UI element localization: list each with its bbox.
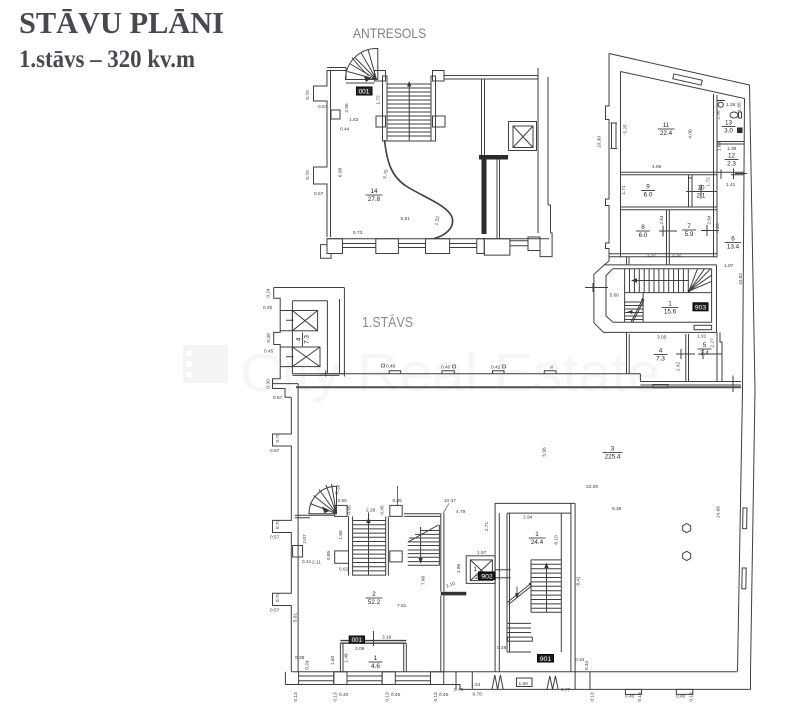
svg-text:5.9: 5.9 xyxy=(685,231,694,238)
svg-text:S: S xyxy=(549,366,555,369)
svg-text:0.85: 0.85 xyxy=(326,551,332,561)
svg-text:1.95: 1.95 xyxy=(737,102,743,112)
svg-text:1: 1 xyxy=(474,567,478,573)
svg-text:2.11: 2.11 xyxy=(312,560,321,566)
svg-text:2.54: 2.54 xyxy=(659,215,665,225)
svg-text:1.10: 1.10 xyxy=(445,581,456,590)
svg-text:5.73: 5.73 xyxy=(353,230,363,236)
svg-text:0.30: 0.30 xyxy=(266,379,272,389)
svg-text:1: 1 xyxy=(668,301,672,308)
svg-text:902: 902 xyxy=(481,574,493,581)
svg-text:10.30: 10.30 xyxy=(597,136,603,148)
svg-text:0.70: 0.70 xyxy=(275,433,281,443)
svg-text:7.66: 7.66 xyxy=(421,576,427,586)
svg-text:11: 11 xyxy=(663,122,670,129)
svg-text:4.86: 4.86 xyxy=(652,164,662,170)
svg-text:3.09: 3.09 xyxy=(355,646,365,652)
svg-text:225.4: 225.4 xyxy=(605,454,621,461)
svg-text:1.36: 1.36 xyxy=(726,102,736,108)
svg-text:0.40: 0.40 xyxy=(676,694,686,700)
svg-text:0.24: 0.24 xyxy=(266,288,272,298)
svg-text:3.0: 3.0 xyxy=(724,128,733,135)
svg-text:0.41: 0.41 xyxy=(302,559,312,565)
svg-text:0.57: 0.57 xyxy=(270,535,280,541)
svg-text:2.29: 2.29 xyxy=(366,508,376,514)
svg-text:6: 6 xyxy=(731,236,735,243)
svg-text:13.4: 13.4 xyxy=(727,244,740,251)
svg-text:0.77: 0.77 xyxy=(561,687,571,693)
svg-text:0.40: 0.40 xyxy=(263,305,273,311)
svg-text:ANTRESOLS: ANTRESOLS xyxy=(353,25,426,41)
svg-text:1.66: 1.66 xyxy=(338,530,344,540)
svg-text:5.60: 5.60 xyxy=(610,293,620,299)
svg-text:1.STĀVS: 1.STĀVS xyxy=(362,315,413,331)
svg-text:1.57: 1.57 xyxy=(477,550,487,556)
svg-text:2.3: 2.3 xyxy=(727,161,736,168)
svg-text:0.13: 0.13 xyxy=(637,692,643,702)
svg-text:4: 4 xyxy=(296,337,303,341)
svg-text:1.07: 1.07 xyxy=(724,263,734,269)
svg-text:2.32: 2.32 xyxy=(672,253,682,259)
svg-text:5.91: 5.91 xyxy=(401,216,411,222)
svg-text:1.38: 1.38 xyxy=(727,146,737,152)
svg-text:3.05: 3.05 xyxy=(657,335,667,341)
svg-text:1.63: 1.63 xyxy=(349,117,359,123)
svg-text:5.70: 5.70 xyxy=(382,169,390,180)
svg-text:STĀVU PLĀNI: STĀVU PLĀNI xyxy=(19,5,224,40)
svg-text:6.0: 6.0 xyxy=(644,192,653,199)
svg-text:2.94: 2.94 xyxy=(523,515,533,521)
svg-text:0.70: 0.70 xyxy=(305,90,311,100)
svg-text:0.40: 0.40 xyxy=(386,364,396,370)
svg-text:5: 5 xyxy=(703,342,707,349)
svg-text:0.34: 0.34 xyxy=(575,657,585,663)
svg-text:0.44: 0.44 xyxy=(340,127,350,133)
svg-text:4: 4 xyxy=(659,348,663,355)
svg-text:1.91: 1.91 xyxy=(697,334,707,340)
svg-text:0.57: 0.57 xyxy=(273,395,283,401)
svg-text:0.65: 0.65 xyxy=(347,505,353,515)
svg-text:3.19: 3.19 xyxy=(382,635,392,641)
svg-text:0.30: 0.30 xyxy=(266,333,272,343)
svg-text:7.3: 7.3 xyxy=(656,356,665,363)
svg-text:0.49: 0.49 xyxy=(497,645,507,651)
svg-text:4.79: 4.79 xyxy=(456,509,466,515)
svg-text:3: 3 xyxy=(611,446,615,453)
svg-text:1.96: 1.96 xyxy=(456,564,462,574)
svg-text:4.20: 4.20 xyxy=(715,223,721,233)
svg-text:City Real Estate: City Real Estate xyxy=(240,343,660,403)
svg-text:8.10: 8.10 xyxy=(554,535,560,545)
svg-text:0.70: 0.70 xyxy=(305,170,311,180)
svg-text:1.58: 1.58 xyxy=(519,681,529,687)
svg-text:24.4: 24.4 xyxy=(531,539,544,546)
svg-text:0.13: 0.13 xyxy=(590,692,596,702)
svg-text:1.72: 1.72 xyxy=(376,95,382,105)
svg-text:6.0: 6.0 xyxy=(639,232,648,239)
svg-text:1.48: 1.48 xyxy=(344,653,350,663)
svg-text:0.45: 0.45 xyxy=(380,505,386,515)
svg-text:0.24: 0.24 xyxy=(305,660,311,670)
svg-text:1.24: 1.24 xyxy=(471,682,481,688)
svg-text:2.07: 2.07 xyxy=(302,534,308,544)
svg-text:0.42: 0.42 xyxy=(491,365,501,371)
svg-text:0.13: 0.13 xyxy=(433,692,439,702)
svg-text:7.3: 7.3 xyxy=(304,335,311,344)
svg-text:0.13: 0.13 xyxy=(689,692,695,702)
svg-text:2.37: 2.37 xyxy=(647,253,657,259)
svg-text:2.56: 2.56 xyxy=(344,103,350,113)
svg-text:1.69: 1.69 xyxy=(717,142,723,152)
svg-text:0.13: 0.13 xyxy=(293,692,299,702)
svg-text:0.38: 0.38 xyxy=(295,655,305,661)
svg-text:5.91: 5.91 xyxy=(293,613,299,623)
svg-text:1: 1 xyxy=(535,531,539,538)
svg-text:0.40: 0.40 xyxy=(625,694,635,700)
svg-text:0.40: 0.40 xyxy=(439,692,449,698)
svg-text:8.36: 8.36 xyxy=(612,506,622,512)
svg-text:2.36: 2.36 xyxy=(716,110,722,120)
svg-text:22.4: 22.4 xyxy=(660,130,673,137)
svg-text:1.71: 1.71 xyxy=(621,185,627,195)
svg-text:0.40: 0.40 xyxy=(339,692,349,698)
svg-text:27.8: 27.8 xyxy=(368,196,381,203)
svg-text:0.70: 0.70 xyxy=(275,520,281,530)
svg-text:1.stāvs – 320 kv.m: 1.stāvs – 320 kv.m xyxy=(19,46,195,73)
svg-text:14.66: 14.66 xyxy=(716,506,722,518)
svg-text:0.57: 0.57 xyxy=(314,191,324,197)
svg-text:1.41: 1.41 xyxy=(726,182,736,188)
svg-text:0.79: 0.79 xyxy=(454,687,464,693)
svg-text:001: 001 xyxy=(359,89,370,96)
svg-text:1.72: 1.72 xyxy=(706,177,712,187)
svg-text:14: 14 xyxy=(370,188,378,195)
svg-text:1.60: 1.60 xyxy=(330,656,336,666)
svg-text:10.37: 10.37 xyxy=(444,498,456,504)
svg-text:6.78: 6.78 xyxy=(473,692,483,698)
svg-text:0.57: 0.57 xyxy=(270,448,280,454)
svg-text:2: 2 xyxy=(475,574,479,581)
svg-text:2: 2 xyxy=(372,591,376,598)
svg-text:0.34: 0.34 xyxy=(584,661,590,671)
svg-text:0.13: 0.13 xyxy=(333,692,339,702)
svg-text:7: 7 xyxy=(687,223,691,230)
svg-text:0.65: 0.65 xyxy=(338,498,348,504)
svg-text:5.25: 5.25 xyxy=(623,124,629,134)
svg-text:6.08: 6.08 xyxy=(338,168,344,178)
svg-text:903: 903 xyxy=(695,305,707,312)
svg-text:001: 001 xyxy=(352,638,363,644)
svg-text:4.6: 4.6 xyxy=(371,663,380,670)
svg-text:15.6: 15.6 xyxy=(664,309,677,316)
svg-text:2.71: 2.71 xyxy=(484,522,490,532)
svg-text:0.40: 0.40 xyxy=(441,365,451,371)
svg-text:2.42: 2.42 xyxy=(676,362,682,372)
svg-text:0.62: 0.62 xyxy=(339,567,349,573)
svg-text:52.2: 52.2 xyxy=(368,599,381,606)
svg-text:901: 901 xyxy=(540,656,552,663)
svg-text:7.61: 7.61 xyxy=(397,603,407,609)
svg-text:1.22: 1.22 xyxy=(434,215,442,226)
svg-text:8.41: 8.41 xyxy=(576,576,582,586)
svg-text:0.45: 0.45 xyxy=(264,349,274,355)
svg-text:12: 12 xyxy=(728,153,736,160)
svg-text:0.70: 0.70 xyxy=(275,593,281,603)
svg-text:0.57: 0.57 xyxy=(270,608,280,614)
svg-text:0.40: 0.40 xyxy=(391,692,401,698)
svg-text:1: 1 xyxy=(374,655,378,662)
svg-text:0.65: 0.65 xyxy=(393,498,403,504)
svg-text:2.27: 2.27 xyxy=(710,338,716,348)
svg-text:0.13: 0.13 xyxy=(385,692,391,702)
svg-text:9: 9 xyxy=(646,184,650,191)
svg-text:23.00: 23.00 xyxy=(586,484,598,490)
svg-text:4.08: 4.08 xyxy=(688,129,694,139)
svg-text:5.96: 5.96 xyxy=(542,447,548,457)
svg-text:13: 13 xyxy=(725,120,733,127)
svg-text:10.82: 10.82 xyxy=(738,273,744,285)
svg-text:0.57: 0.57 xyxy=(318,104,328,110)
svg-text:8: 8 xyxy=(641,224,645,231)
svg-text:2.54: 2.54 xyxy=(707,215,713,225)
